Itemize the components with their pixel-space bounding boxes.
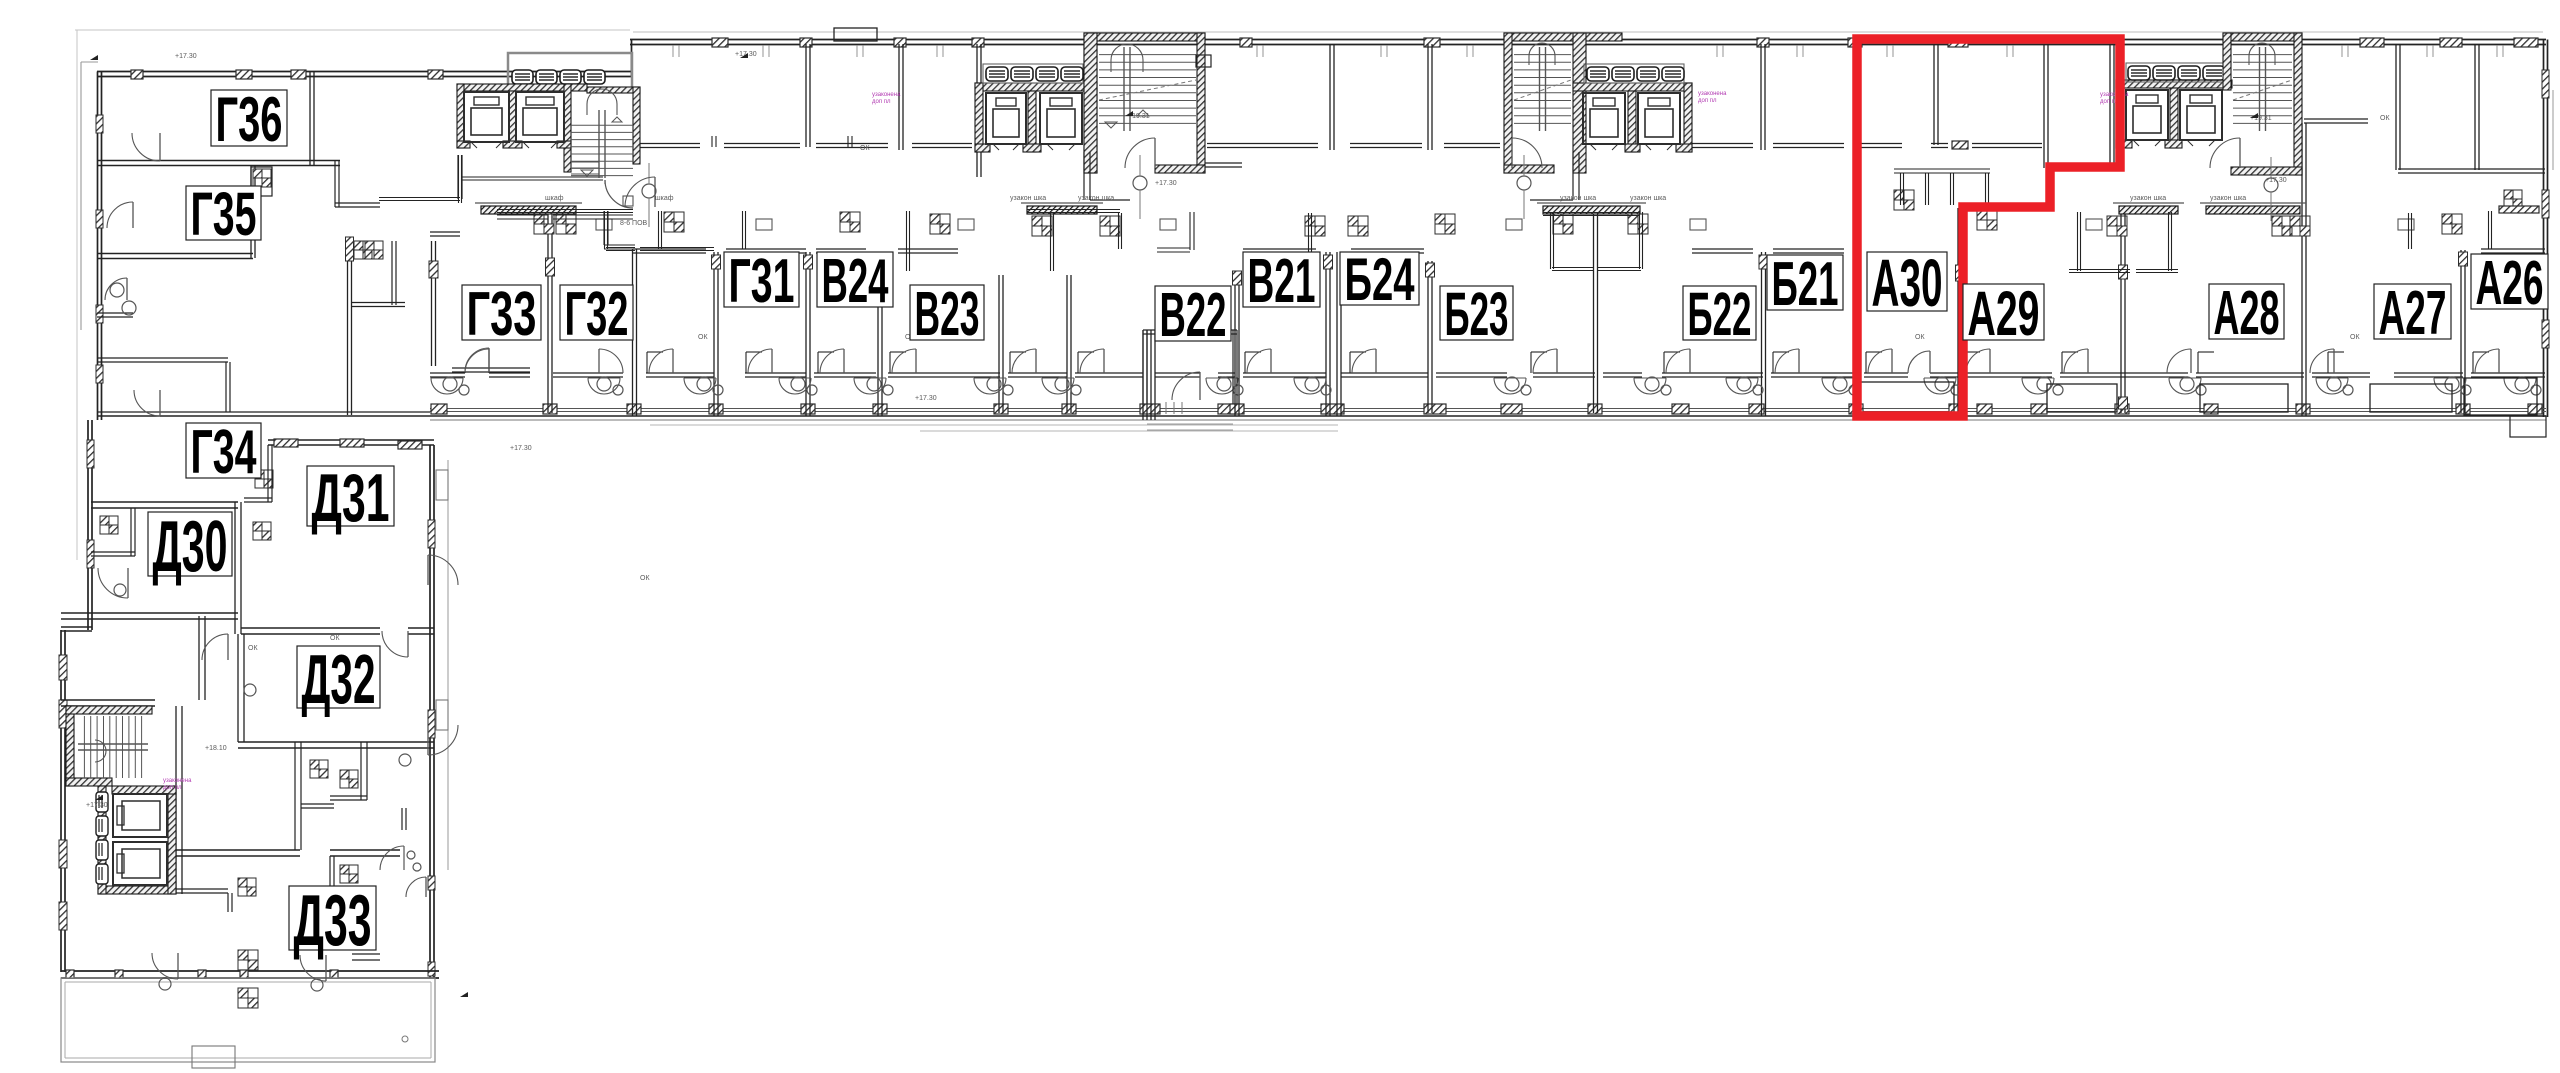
- svg-text:ОК: ОК: [698, 334, 708, 341]
- svg-text:узаконена: узаконена: [1698, 91, 1727, 97]
- svg-text:Г33: Г33: [467, 280, 537, 349]
- svg-text:узакон шка: узакон шка: [1010, 195, 1046, 202]
- svg-text:ОК: ОК: [640, 575, 650, 582]
- svg-text:+17.30: +17.30: [915, 395, 937, 402]
- svg-text:узакон шка: узакон шка: [2210, 195, 2246, 202]
- svg-text:+17.30: +17.30: [1155, 180, 1177, 187]
- svg-text:узаконена: узаконена: [163, 778, 192, 784]
- svg-text:А27: А27: [2379, 279, 2447, 348]
- svg-text:Б22: Б22: [1688, 280, 1752, 348]
- svg-text:Д30: Д30: [153, 507, 228, 587]
- svg-text:А29: А29: [1968, 279, 2040, 349]
- svg-text:доп пл: доп пл: [1698, 98, 1717, 104]
- svg-text:Д31: Д31: [312, 460, 390, 536]
- svg-text:доп пл: доп пл: [872, 99, 891, 105]
- svg-text:Г32: Г32: [565, 280, 629, 349]
- svg-text:Г34: Г34: [191, 418, 257, 487]
- svg-text:Г31: Г31: [729, 247, 795, 316]
- svg-text:В24: В24: [822, 247, 889, 316]
- svg-text:шкаф: шкаф: [545, 195, 564, 202]
- svg-text:А26: А26: [2476, 249, 2544, 318]
- svg-text:узакон шка: узакон шка: [1560, 195, 1596, 202]
- svg-text:А28: А28: [2214, 279, 2280, 348]
- svg-text:ОК: ОК: [2350, 334, 2360, 341]
- svg-text:Б23: Б23: [1445, 280, 1509, 348]
- svg-text:+17.30: +17.30: [510, 445, 532, 452]
- svg-text:Д32: Д32: [302, 640, 376, 718]
- svg-text:ОК: ОК: [860, 145, 870, 152]
- svg-text:шкаф: шкаф: [655, 195, 674, 202]
- svg-text:+17.30: +17.30: [86, 802, 108, 809]
- svg-text:Д33: Д33: [294, 881, 372, 961]
- svg-text:Б21: Б21: [1772, 250, 1839, 319]
- svg-text:узакон шка: узакон шка: [1078, 195, 1114, 202]
- svg-text:узаконена: узаконена: [872, 92, 901, 98]
- svg-text:В21: В21: [1248, 247, 1316, 316]
- svg-text:+17.30: +17.30: [175, 53, 197, 60]
- svg-text:А30: А30: [1872, 246, 1943, 321]
- svg-text:Г35: Г35: [191, 180, 257, 248]
- svg-text:+18.10: +18.10: [205, 745, 227, 752]
- svg-text:ОК: ОК: [2380, 115, 2390, 122]
- svg-text:доп пл: доп пл: [163, 785, 182, 791]
- svg-text:ОК: ОК: [248, 645, 258, 652]
- svg-text:В22: В22: [1160, 281, 1227, 350]
- svg-text:узакон шка: узакон шка: [2130, 195, 2166, 202]
- svg-text:Г36: Г36: [216, 85, 283, 155]
- svg-text:В23: В23: [915, 280, 980, 349]
- svg-text:+17.30: +17.30: [2265, 177, 2287, 184]
- svg-text:ОК: ОК: [1915, 334, 1925, 341]
- svg-text:узакон шка: узакон шка: [1630, 195, 1666, 202]
- svg-text:8-6 ПОВ: 8-6 ПОВ: [620, 220, 648, 227]
- svg-text:Б24: Б24: [1345, 246, 1415, 313]
